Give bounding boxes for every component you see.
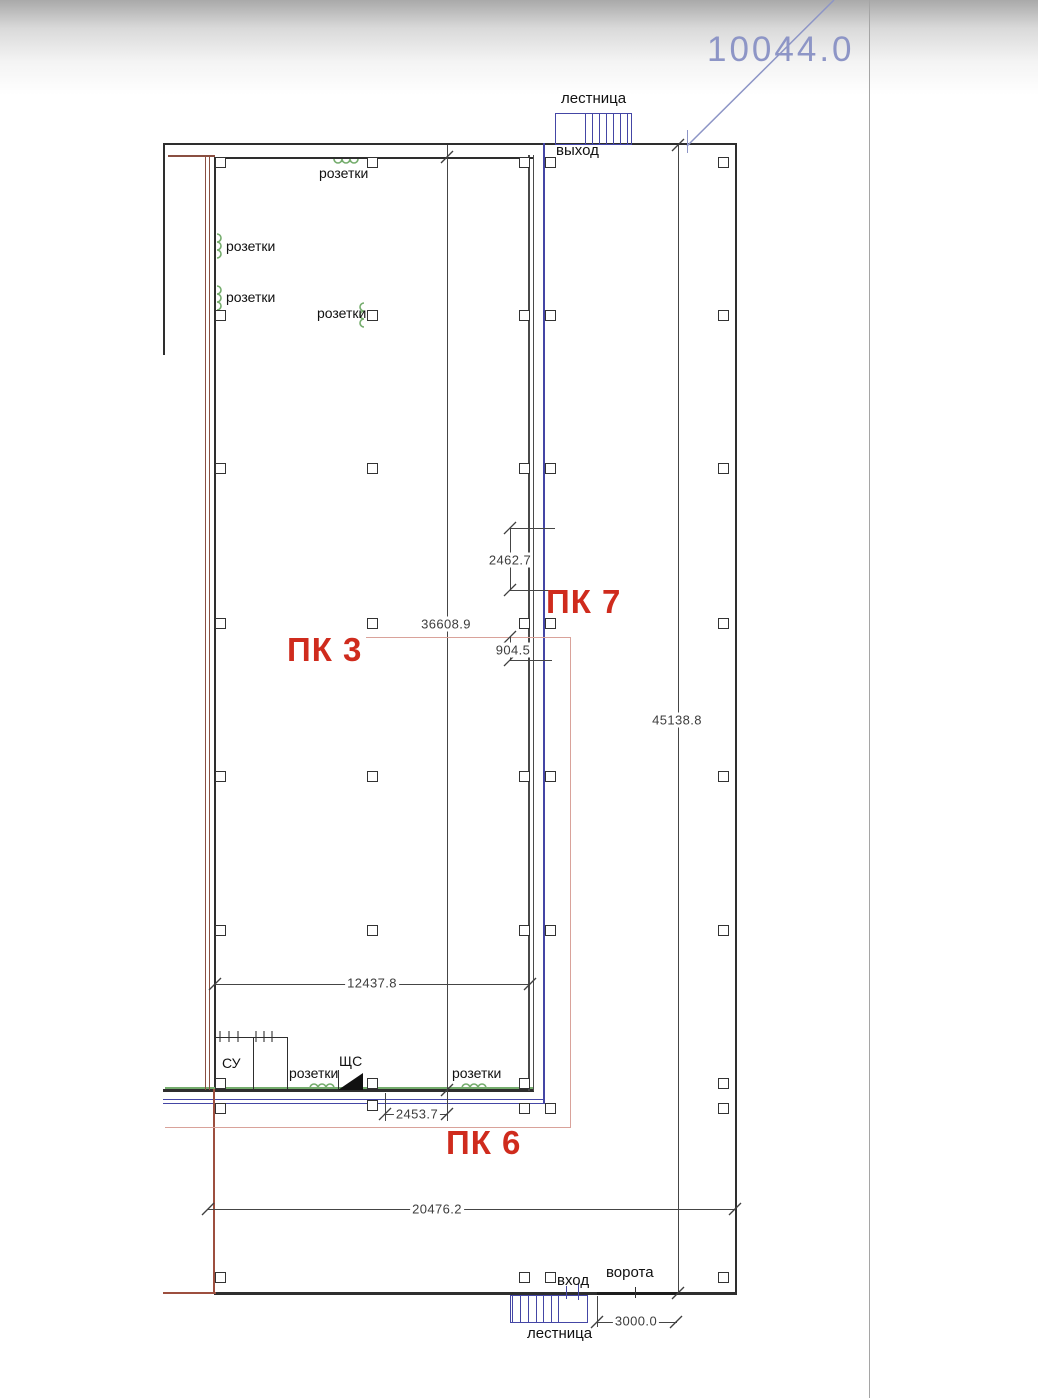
stair-tread <box>585 113 586 145</box>
column-marker <box>215 1078 226 1089</box>
column-marker <box>718 1272 729 1283</box>
bathroom-label: СУ <box>222 1056 241 1071</box>
wall-right <box>735 143 737 1294</box>
dim-hall-height: 36608.9 <box>419 617 473 632</box>
column-marker <box>718 618 729 629</box>
boundary-line-left-a <box>205 155 206 1090</box>
pk-zone-right <box>570 637 572 1128</box>
outlet-symbol-left-1 <box>217 234 221 258</box>
stair-tread <box>606 113 607 145</box>
column-marker <box>718 157 729 168</box>
stair-tread <box>613 113 614 145</box>
pk6-marker: ПК 6 <box>446 1124 521 1162</box>
gate-label: ворота <box>606 1265 654 1281</box>
outlet-symbol-top <box>334 159 358 163</box>
stair-tread <box>512 1295 513 1323</box>
stair-bottom-label: лестница <box>527 1326 592 1342</box>
column-marker <box>718 463 729 474</box>
column-marker <box>519 618 530 629</box>
column-marker <box>718 771 729 782</box>
hall-wall-bottom <box>163 1089 534 1092</box>
entrance-label: вход <box>557 1273 589 1289</box>
outlets-label-top: розетки <box>319 166 368 181</box>
dim-top-leader: 10044.0 <box>707 30 855 70</box>
column-marker <box>545 1272 556 1283</box>
dim-ext-gate-left <box>597 1296 598 1327</box>
sheet-top-shading <box>0 0 1038 100</box>
dim-right-height: 45138.8 <box>650 713 704 728</box>
stair-tread <box>536 1295 537 1323</box>
staircase-bottom <box>510 1295 588 1323</box>
column-marker <box>545 310 556 321</box>
column-marker <box>545 925 556 936</box>
column-marker <box>545 157 556 168</box>
dim-line-bottom-width <box>208 1209 735 1210</box>
dim-hall-width: 12437.8 <box>345 976 399 991</box>
stair-top-label: лестница <box>561 91 626 107</box>
dim-ext-2462-top <box>510 528 555 529</box>
column-marker <box>718 1078 729 1089</box>
diagonal-overlay <box>0 0 1038 1398</box>
wall-bottom-left-maroon <box>163 1292 216 1294</box>
column-marker <box>519 463 530 474</box>
stair-tread <box>558 1295 559 1323</box>
dim-ext-2453-left <box>385 1093 386 1121</box>
column-marker <box>215 925 226 936</box>
column-marker <box>519 310 530 321</box>
boundary-line-top <box>168 155 215 157</box>
column-marker <box>367 1078 378 1089</box>
column-marker <box>367 310 378 321</box>
stair-tread <box>620 113 621 145</box>
outlets-label-bottom-center: розетки <box>452 1066 501 1081</box>
dim-ext-2453-right <box>447 1090 448 1121</box>
column-marker <box>718 925 729 936</box>
column-marker <box>215 310 226 321</box>
column-marker <box>215 1103 226 1114</box>
column-marker <box>519 1103 530 1114</box>
dim-gate-width: 3000.0 <box>613 1314 659 1329</box>
stair-tread <box>599 113 600 145</box>
wall-top <box>163 143 737 145</box>
stair-tread <box>543 1295 544 1323</box>
sheet-frame-line <box>869 0 870 1398</box>
column-marker <box>367 771 378 782</box>
gate-opening <box>597 1292 678 1296</box>
column-marker <box>215 463 226 474</box>
leader-end-tick <box>687 130 688 153</box>
column-marker <box>367 925 378 936</box>
boundary-line-left-b <box>209 155 210 1090</box>
column-marker <box>215 618 226 629</box>
column-marker <box>367 463 378 474</box>
dim-2453: 2453.7 <box>394 1107 440 1122</box>
stair-tread <box>528 1295 529 1323</box>
column-marker <box>545 771 556 782</box>
outlets-label-mid: розетки <box>317 306 366 321</box>
wall-left-stub <box>163 143 165 355</box>
column-marker <box>545 1103 556 1114</box>
panel-label: ЩС <box>339 1054 362 1069</box>
su-room-top-wall <box>214 1037 288 1038</box>
gate-center-tick <box>635 1287 636 1298</box>
column-marker <box>215 157 226 168</box>
column-marker <box>519 771 530 782</box>
stair-tread <box>520 1295 521 1323</box>
column-marker <box>215 771 226 782</box>
outlets-label-bottom-left: розетки <box>289 1066 338 1081</box>
column-marker <box>718 310 729 321</box>
column-marker <box>367 618 378 629</box>
dim-904: 904.5 <box>494 643 533 658</box>
outlet-symbol-left-2 <box>217 286 221 310</box>
outlets-label-left-2: розетки <box>226 290 275 305</box>
dim-2462: 2462.7 <box>487 553 533 568</box>
dim-ext-904-bottom <box>510 660 552 661</box>
column-marker <box>519 925 530 936</box>
boundary-line-bottom-vertical <box>213 1089 215 1293</box>
pk3-marker: ПК 3 <box>287 631 362 669</box>
pk-zone-top <box>366 637 571 639</box>
column-marker <box>215 1272 226 1283</box>
column-marker <box>519 157 530 168</box>
column-marker <box>367 1100 378 1111</box>
stair-tread <box>627 113 628 145</box>
stair-tread <box>592 113 593 145</box>
dim-bottom-width: 20476.2 <box>410 1202 464 1217</box>
outlets-label-left-1: розетки <box>226 239 275 254</box>
column-marker <box>367 157 378 168</box>
corridor-line-horizontal-a <box>163 1099 545 1100</box>
column-marker <box>519 1272 530 1283</box>
column-marker <box>718 1103 729 1114</box>
pk7-marker: ПК 7 <box>546 583 621 621</box>
floor-plan: 10044.0 лестница выход розетки розетки р… <box>0 0 1038 1398</box>
column-marker <box>519 1078 530 1089</box>
su-room-right-wall <box>287 1037 288 1090</box>
stair-tread <box>551 1295 552 1323</box>
exit-label: выход <box>556 143 599 159</box>
hall-wall-right-b <box>533 155 535 1091</box>
column-marker <box>545 463 556 474</box>
su-room-partition <box>253 1037 254 1090</box>
